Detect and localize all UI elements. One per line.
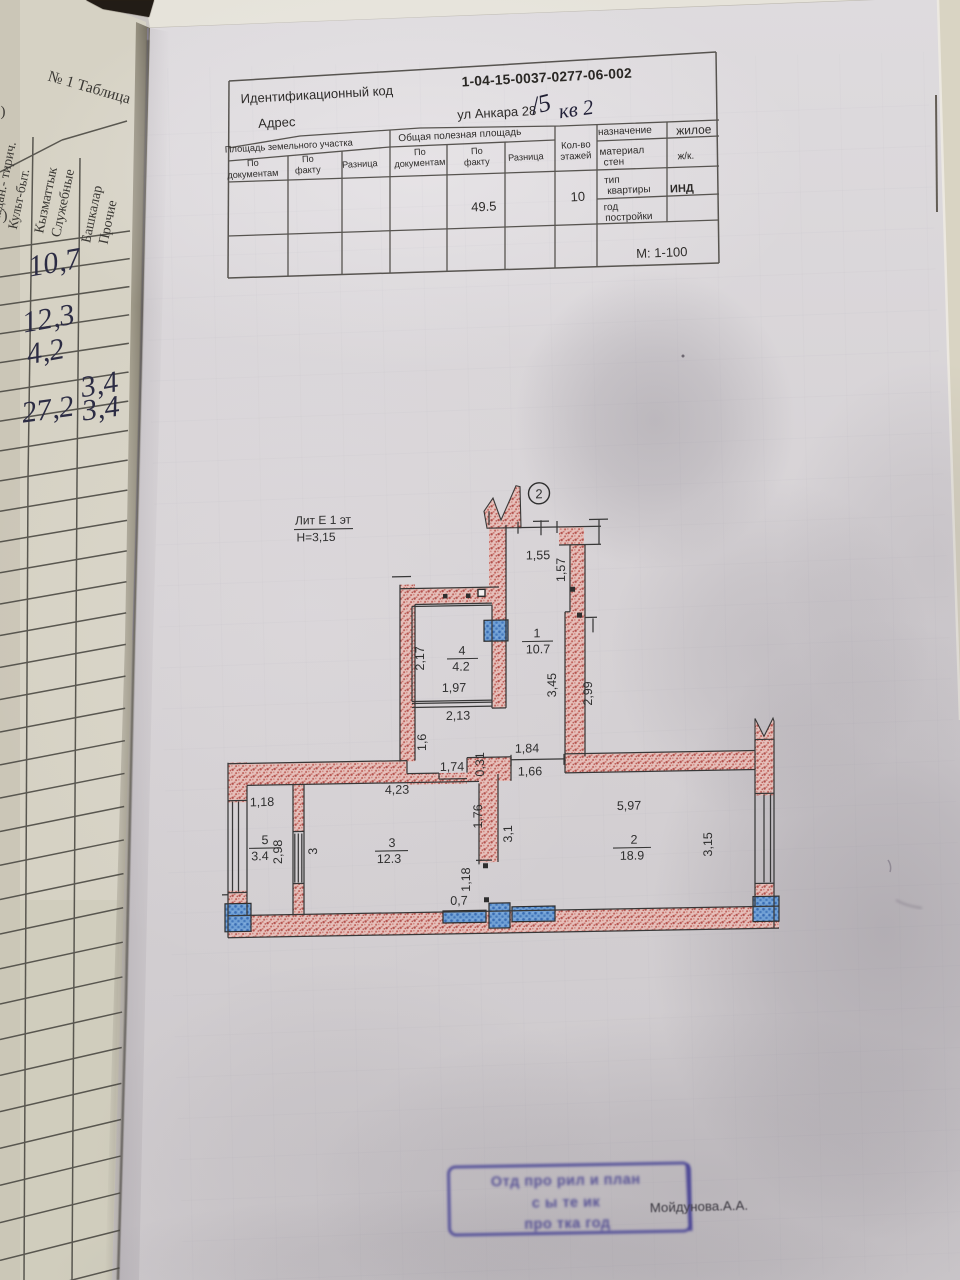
svg-text:кв 2: кв 2: [557, 95, 595, 124]
svg-text:1,18: 1,18: [459, 867, 473, 892]
svg-text:4: 4: [459, 644, 466, 658]
svg-text:1,74: 1,74: [440, 760, 464, 774]
svg-text:2,17: 2,17: [413, 646, 427, 671]
svg-text:2: 2: [535, 486, 542, 501]
svg-text:По: По: [302, 154, 314, 165]
svg-text:жилое: жилое: [676, 122, 712, 138]
svg-text:ж/к.: ж/к.: [677, 151, 694, 163]
svg-text:5,97: 5,97: [617, 799, 641, 813]
svg-text:постройки: постройки: [605, 211, 653, 224]
svg-text:3: 3: [389, 836, 396, 850]
svg-text:стен: стен: [603, 157, 624, 169]
svg-text:М: 1-100: М: 1-100: [636, 244, 688, 261]
svg-text:этажей: этажей: [560, 150, 592, 163]
svg-text:Мойдунова.А.А.: Мойдунова.А.А.: [650, 1198, 749, 1216]
svg-text:Разница: Разница: [342, 158, 379, 170]
svg-text:Отд про рил и план: Отд про рил и план: [491, 1172, 641, 1191]
svg-text:3,15: 3,15: [701, 832, 715, 857]
svg-text:3,4: 3,4: [79, 390, 122, 428]
svg-text:Адрес: Адрес: [258, 114, 296, 131]
svg-text:1,84: 1,84: [515, 741, 539, 755]
svg-text:1,6: 1,6: [415, 734, 429, 752]
svg-text:4,2: 4,2: [24, 332, 67, 371]
svg-text:2,98: 2,98: [271, 840, 285, 865]
svg-text:факту: факту: [295, 164, 322, 175]
svg-text:3: 3: [306, 848, 320, 855]
svg-text:10: 10: [570, 189, 585, 205]
svg-text:0,31: 0,31: [473, 752, 487, 777]
svg-text:1,66: 1,66: [518, 764, 542, 778]
svg-text:Лит Е 1 эт: Лит Е 1 эт: [295, 513, 352, 528]
svg-text:Н=3,15: Н=3,15: [296, 530, 335, 545]
svg-text:3.4: 3.4: [251, 849, 268, 863]
svg-text:факту: факту: [464, 156, 491, 167]
svg-text:3,1: 3,1: [501, 825, 515, 843]
svg-text:4.2: 4.2: [452, 660, 469, 674]
svg-text:4,23: 4,23: [385, 783, 409, 797]
svg-text:0,7: 0,7: [450, 894, 467, 908]
svg-text:По: По: [247, 158, 259, 169]
svg-text:про тка год: про тка год: [524, 1215, 610, 1233]
svg-text:Разница: Разница: [508, 151, 545, 163]
svg-text:10.7: 10.7: [526, 642, 550, 656]
svg-text:2: 2: [631, 833, 638, 847]
svg-text:12.3: 12.3: [377, 852, 401, 866]
svg-text:с ы те ик: с ы те ик: [532, 1194, 601, 1211]
svg-text:1,76: 1,76: [471, 804, 485, 829]
svg-text:): ): [1, 104, 6, 120]
svg-text:1,57: 1,57: [554, 558, 568, 583]
svg-text:квартиры: квартиры: [607, 184, 651, 197]
svg-text:ИНД: ИНД: [670, 182, 694, 195]
svg-text:1,55: 1,55: [526, 548, 550, 562]
svg-text:1,18: 1,18: [250, 795, 274, 809]
svg-text:49.5: 49.5: [471, 198, 497, 214]
svg-text:2,13: 2,13: [446, 709, 470, 723]
svg-text:5: 5: [262, 833, 269, 847]
svg-text:3,45: 3,45: [545, 673, 559, 698]
svg-text:По: По: [471, 146, 483, 157]
svg-text:1: 1: [534, 626, 541, 640]
svg-text:По: По: [414, 147, 426, 158]
svg-text:18.9: 18.9: [620, 848, 644, 862]
svg-text:2,99: 2,99: [581, 681, 595, 706]
svg-text:1,97: 1,97: [442, 681, 466, 695]
